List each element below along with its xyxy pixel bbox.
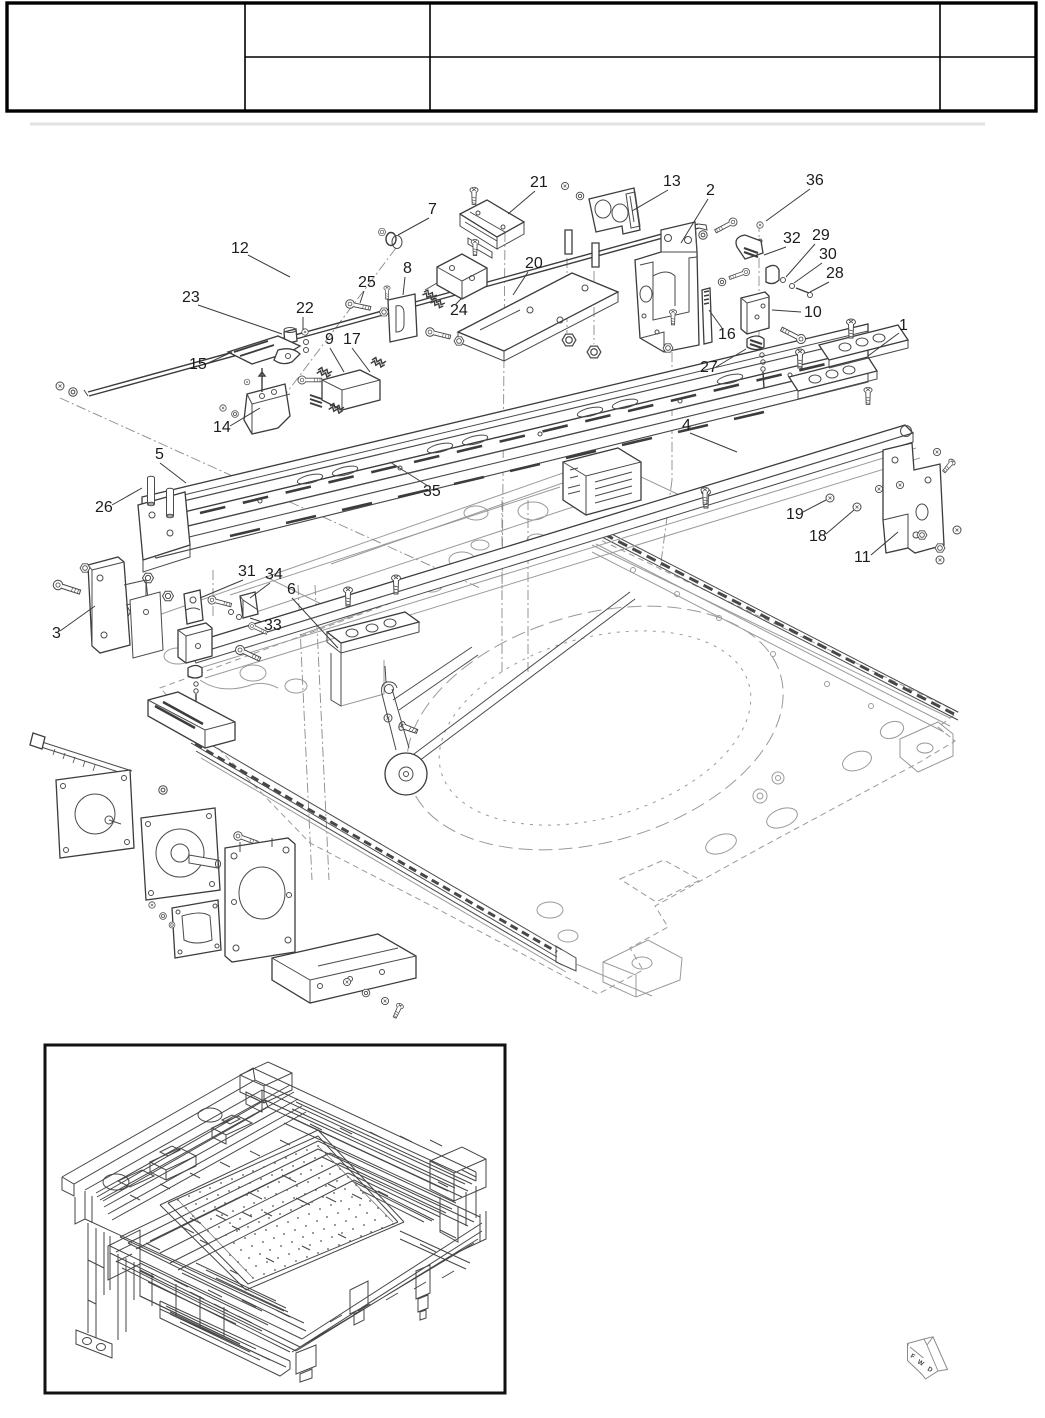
svg-text:29: 29 <box>812 227 830 244</box>
svg-text:28: 28 <box>826 265 844 282</box>
svg-text:6: 6 <box>287 581 296 598</box>
svg-text:8: 8 <box>403 260 412 277</box>
svg-text:15: 15 <box>189 356 207 373</box>
svg-text:26: 26 <box>95 499 113 516</box>
svg-text:23: 23 <box>182 289 200 306</box>
svg-text:14: 14 <box>213 419 231 436</box>
svg-text:13: 13 <box>663 173 681 190</box>
svg-text:31: 31 <box>238 563 256 580</box>
svg-text:24: 24 <box>450 302 468 319</box>
svg-text:18: 18 <box>809 528 827 545</box>
svg-text:33: 33 <box>264 617 282 634</box>
svg-text:34: 34 <box>265 566 283 583</box>
svg-text:30: 30 <box>819 246 837 263</box>
svg-text:4: 4 <box>682 417 691 434</box>
svg-text:11: 11 <box>854 549 871 566</box>
svg-text:1: 1 <box>899 317 908 334</box>
svg-text:35: 35 <box>423 483 441 500</box>
svg-text:16: 16 <box>718 326 736 343</box>
svg-text:9: 9 <box>325 331 334 348</box>
svg-text:7: 7 <box>428 201 437 218</box>
svg-text:2: 2 <box>706 182 715 199</box>
svg-text:22: 22 <box>296 300 314 317</box>
svg-text:19: 19 <box>786 506 804 523</box>
svg-text:21: 21 <box>530 174 548 191</box>
svg-text:32: 32 <box>783 230 801 247</box>
svg-text:12: 12 <box>231 240 249 257</box>
svg-text:5: 5 <box>155 446 164 463</box>
svg-text:20: 20 <box>525 255 543 272</box>
svg-text:17: 17 <box>343 331 361 348</box>
svg-text:27: 27 <box>700 359 718 376</box>
svg-text:36: 36 <box>806 172 824 189</box>
svg-text:10: 10 <box>804 304 822 321</box>
svg-text:25: 25 <box>358 274 376 291</box>
svg-text:3: 3 <box>52 625 61 642</box>
